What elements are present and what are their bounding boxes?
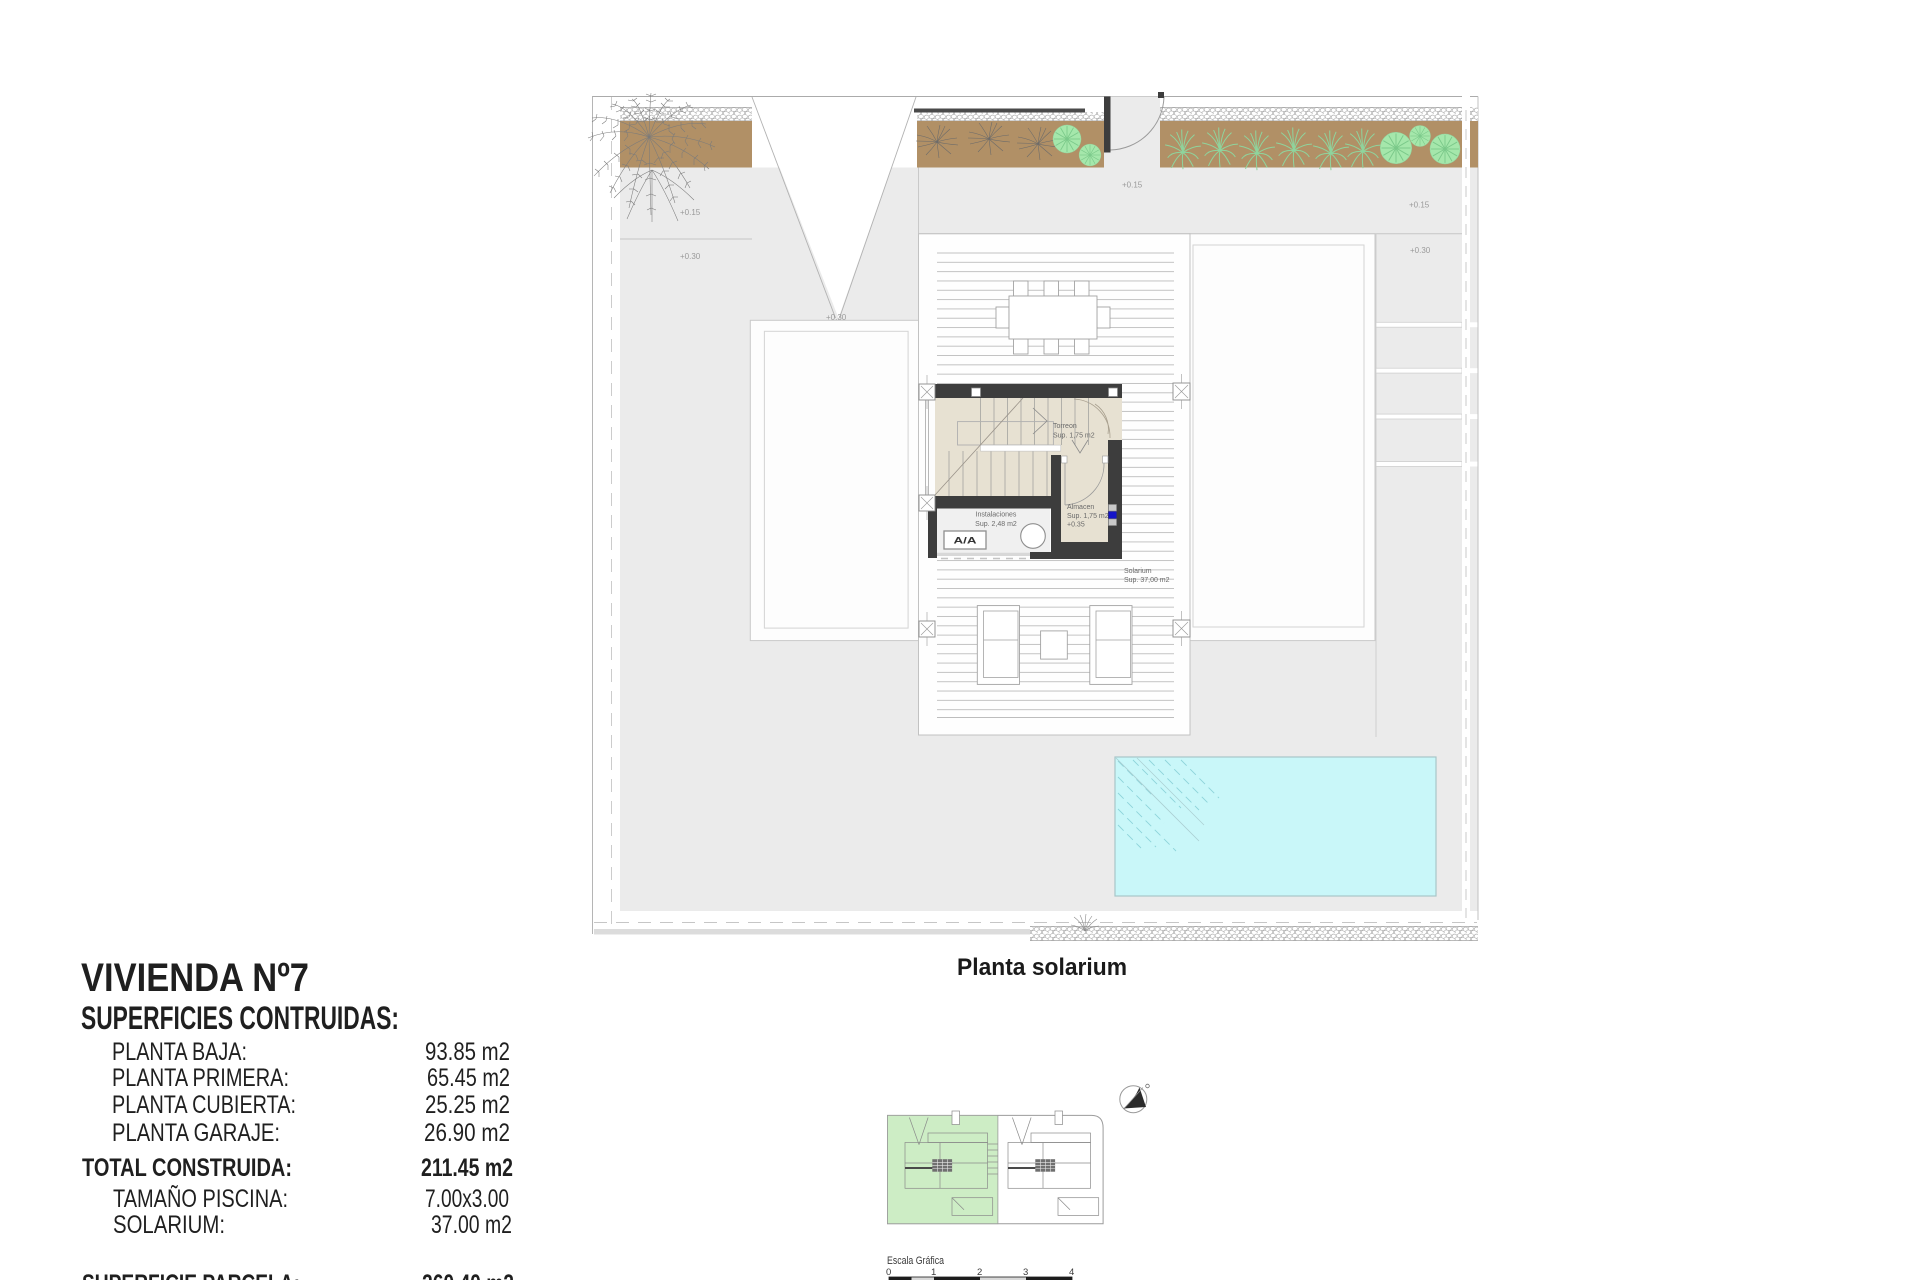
svg-text:PLANTA BAJA:: PLANTA BAJA: xyxy=(112,1038,247,1066)
svg-text:+0.15: +0.15 xyxy=(1122,181,1143,190)
svg-text:25.25 m2: 25.25 m2 xyxy=(425,1091,510,1119)
svg-text:SUPERFICIE PARCELA:: SUPERFICIE PARCELA: xyxy=(82,1270,300,1280)
svg-text:4: 4 xyxy=(1069,1267,1074,1278)
svg-text:PLANTA PRIMERA:: PLANTA PRIMERA: xyxy=(112,1064,289,1092)
svg-text:+0.30: +0.30 xyxy=(826,313,847,322)
svg-text:VIVIENDA Nº7: VIVIENDA Nº7 xyxy=(81,956,309,1000)
svg-text:Sup. 1,75 m2: Sup. 1,75 m2 xyxy=(1067,513,1109,520)
svg-text:PLANTA GARAJE:: PLANTA GARAJE: xyxy=(112,1119,280,1147)
svg-text:2: 2 xyxy=(977,1267,982,1278)
svg-text:37.00 m2: 37.00 m2 xyxy=(431,1211,512,1239)
svg-text:Escala Gráfica: Escala Gráfica xyxy=(887,1255,945,1267)
svg-text:Sup. 2,48 m2: Sup. 2,48 m2 xyxy=(975,521,1017,528)
svg-text:93.85 m2: 93.85 m2 xyxy=(425,1038,510,1066)
svg-text:+0.15: +0.15 xyxy=(680,208,701,217)
svg-text:26.90 m2: 26.90 m2 xyxy=(424,1119,510,1147)
svg-text:TOTAL CONSTRUIDA:: TOTAL CONSTRUIDA: xyxy=(82,1154,292,1182)
svg-text:211.45 m2: 211.45 m2 xyxy=(421,1154,513,1182)
svg-text:Planta solarium: Planta solarium xyxy=(957,954,1127,981)
svg-text:A/A: A/A xyxy=(954,536,978,546)
svg-text:Sup. 1,75 m2: Sup. 1,75 m2 xyxy=(1053,433,1095,440)
svg-text:+0.35: +0.35 xyxy=(1067,522,1085,529)
svg-text:260.40 m2: 260.40 m2 xyxy=(422,1270,514,1280)
svg-text:+0.15: +0.15 xyxy=(1409,201,1430,210)
svg-text:SOLARIUM:: SOLARIUM: xyxy=(113,1211,225,1239)
svg-text:+0.30: +0.30 xyxy=(680,252,701,261)
svg-text:PLANTA CUBIERTA:: PLANTA CUBIERTA: xyxy=(112,1091,296,1119)
svg-text:Solarium: Solarium xyxy=(1124,568,1152,575)
svg-text:7.00x3.00: 7.00x3.00 xyxy=(425,1185,509,1213)
svg-text:Instalaciones: Instalaciones xyxy=(976,512,1017,519)
svg-text:3: 3 xyxy=(1023,1267,1028,1278)
svg-text:Torreon: Torreon xyxy=(1053,423,1077,430)
svg-text:Sup. 37,00 m2: Sup. 37,00 m2 xyxy=(1124,577,1170,584)
svg-text:TAMAÑO PISCINA:: TAMAÑO PISCINA: xyxy=(113,1184,288,1213)
svg-text:SUPERFICIES CONTRUIDAS:: SUPERFICIES CONTRUIDAS: xyxy=(81,1000,399,1036)
svg-text:65.45 m2: 65.45 m2 xyxy=(427,1064,510,1092)
svg-text:0: 0 xyxy=(886,1267,891,1278)
svg-text:1: 1 xyxy=(931,1267,936,1278)
svg-text:Almacen: Almacen xyxy=(1067,504,1094,511)
svg-text:+0.30: +0.30 xyxy=(1410,246,1431,255)
